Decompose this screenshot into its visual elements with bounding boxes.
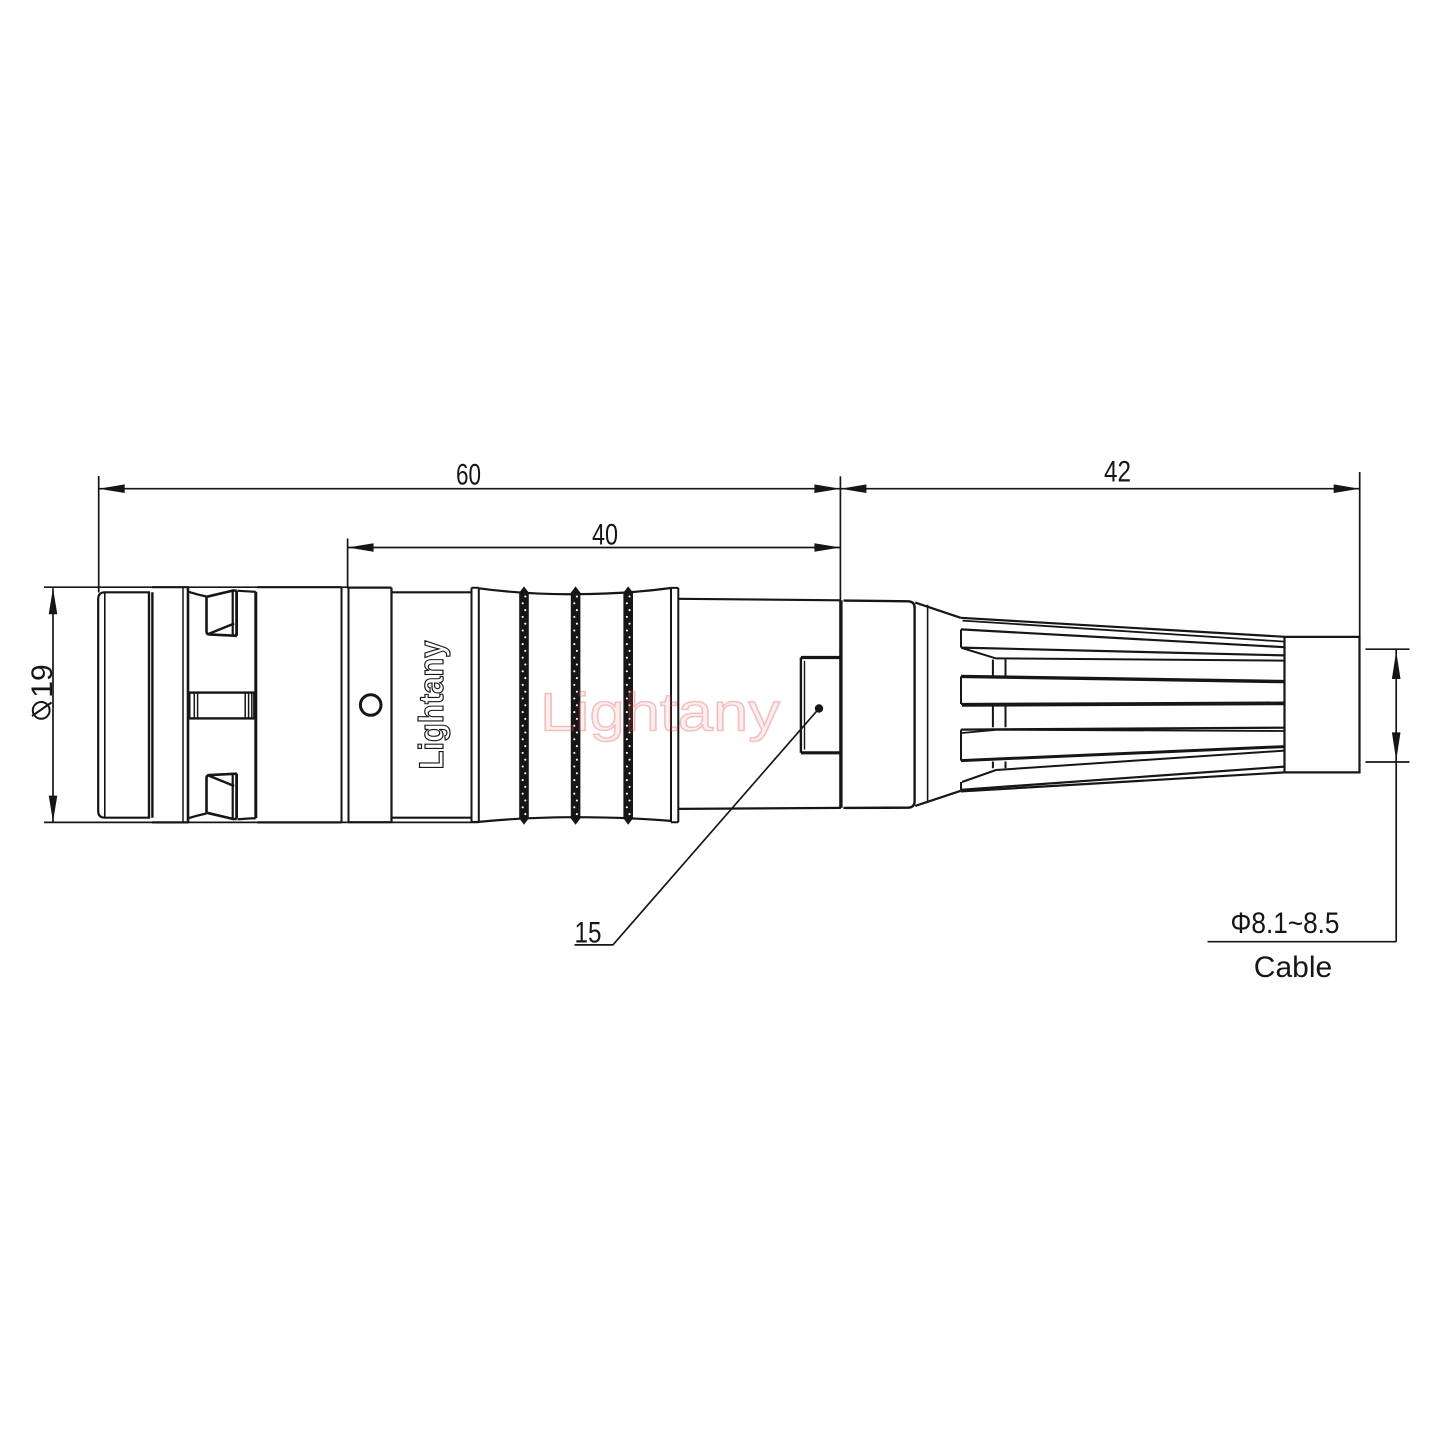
- svg-text:60: 60: [456, 459, 481, 492]
- svg-text:Φ8.1~8.5: Φ8.1~8.5: [1231, 907, 1340, 940]
- svg-text:Lightany: Lightany: [413, 640, 451, 769]
- svg-text:Lightany: Lightany: [540, 683, 780, 743]
- svg-text:Cable: Cable: [1254, 951, 1332, 984]
- svg-text:19: 19: [26, 664, 59, 697]
- svg-text:40: 40: [592, 519, 618, 552]
- svg-text:15: 15: [575, 917, 602, 950]
- svg-text:42: 42: [1104, 456, 1131, 489]
